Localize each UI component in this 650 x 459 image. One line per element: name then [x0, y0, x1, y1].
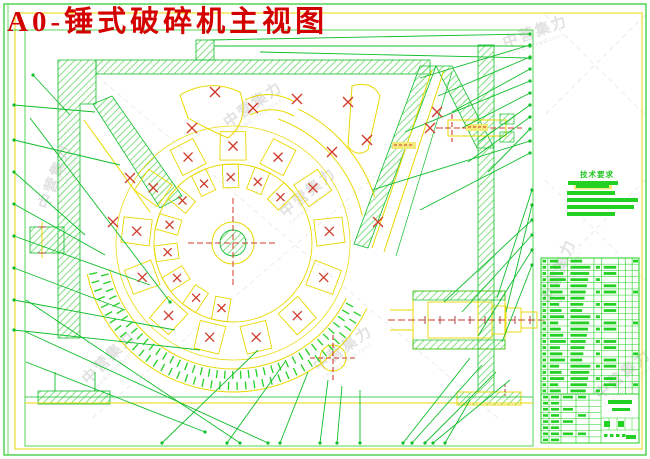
- right-panel: [541, 181, 639, 443]
- cad-sheet: 中营集力ZHONGYINGJULI 中营集力ZHONGYINGJULI 中营集力…: [0, 0, 650, 459]
- tech-requirements-heading: 技术要求: [580, 169, 614, 179]
- drawing-title: A0-锤式破碎机主视图: [7, 0, 328, 40]
- drawing-sheet: A0-锤式破碎机主视图 中营集力ZHONGYINGJULI 中营集力ZHONGY…: [0, 0, 650, 459]
